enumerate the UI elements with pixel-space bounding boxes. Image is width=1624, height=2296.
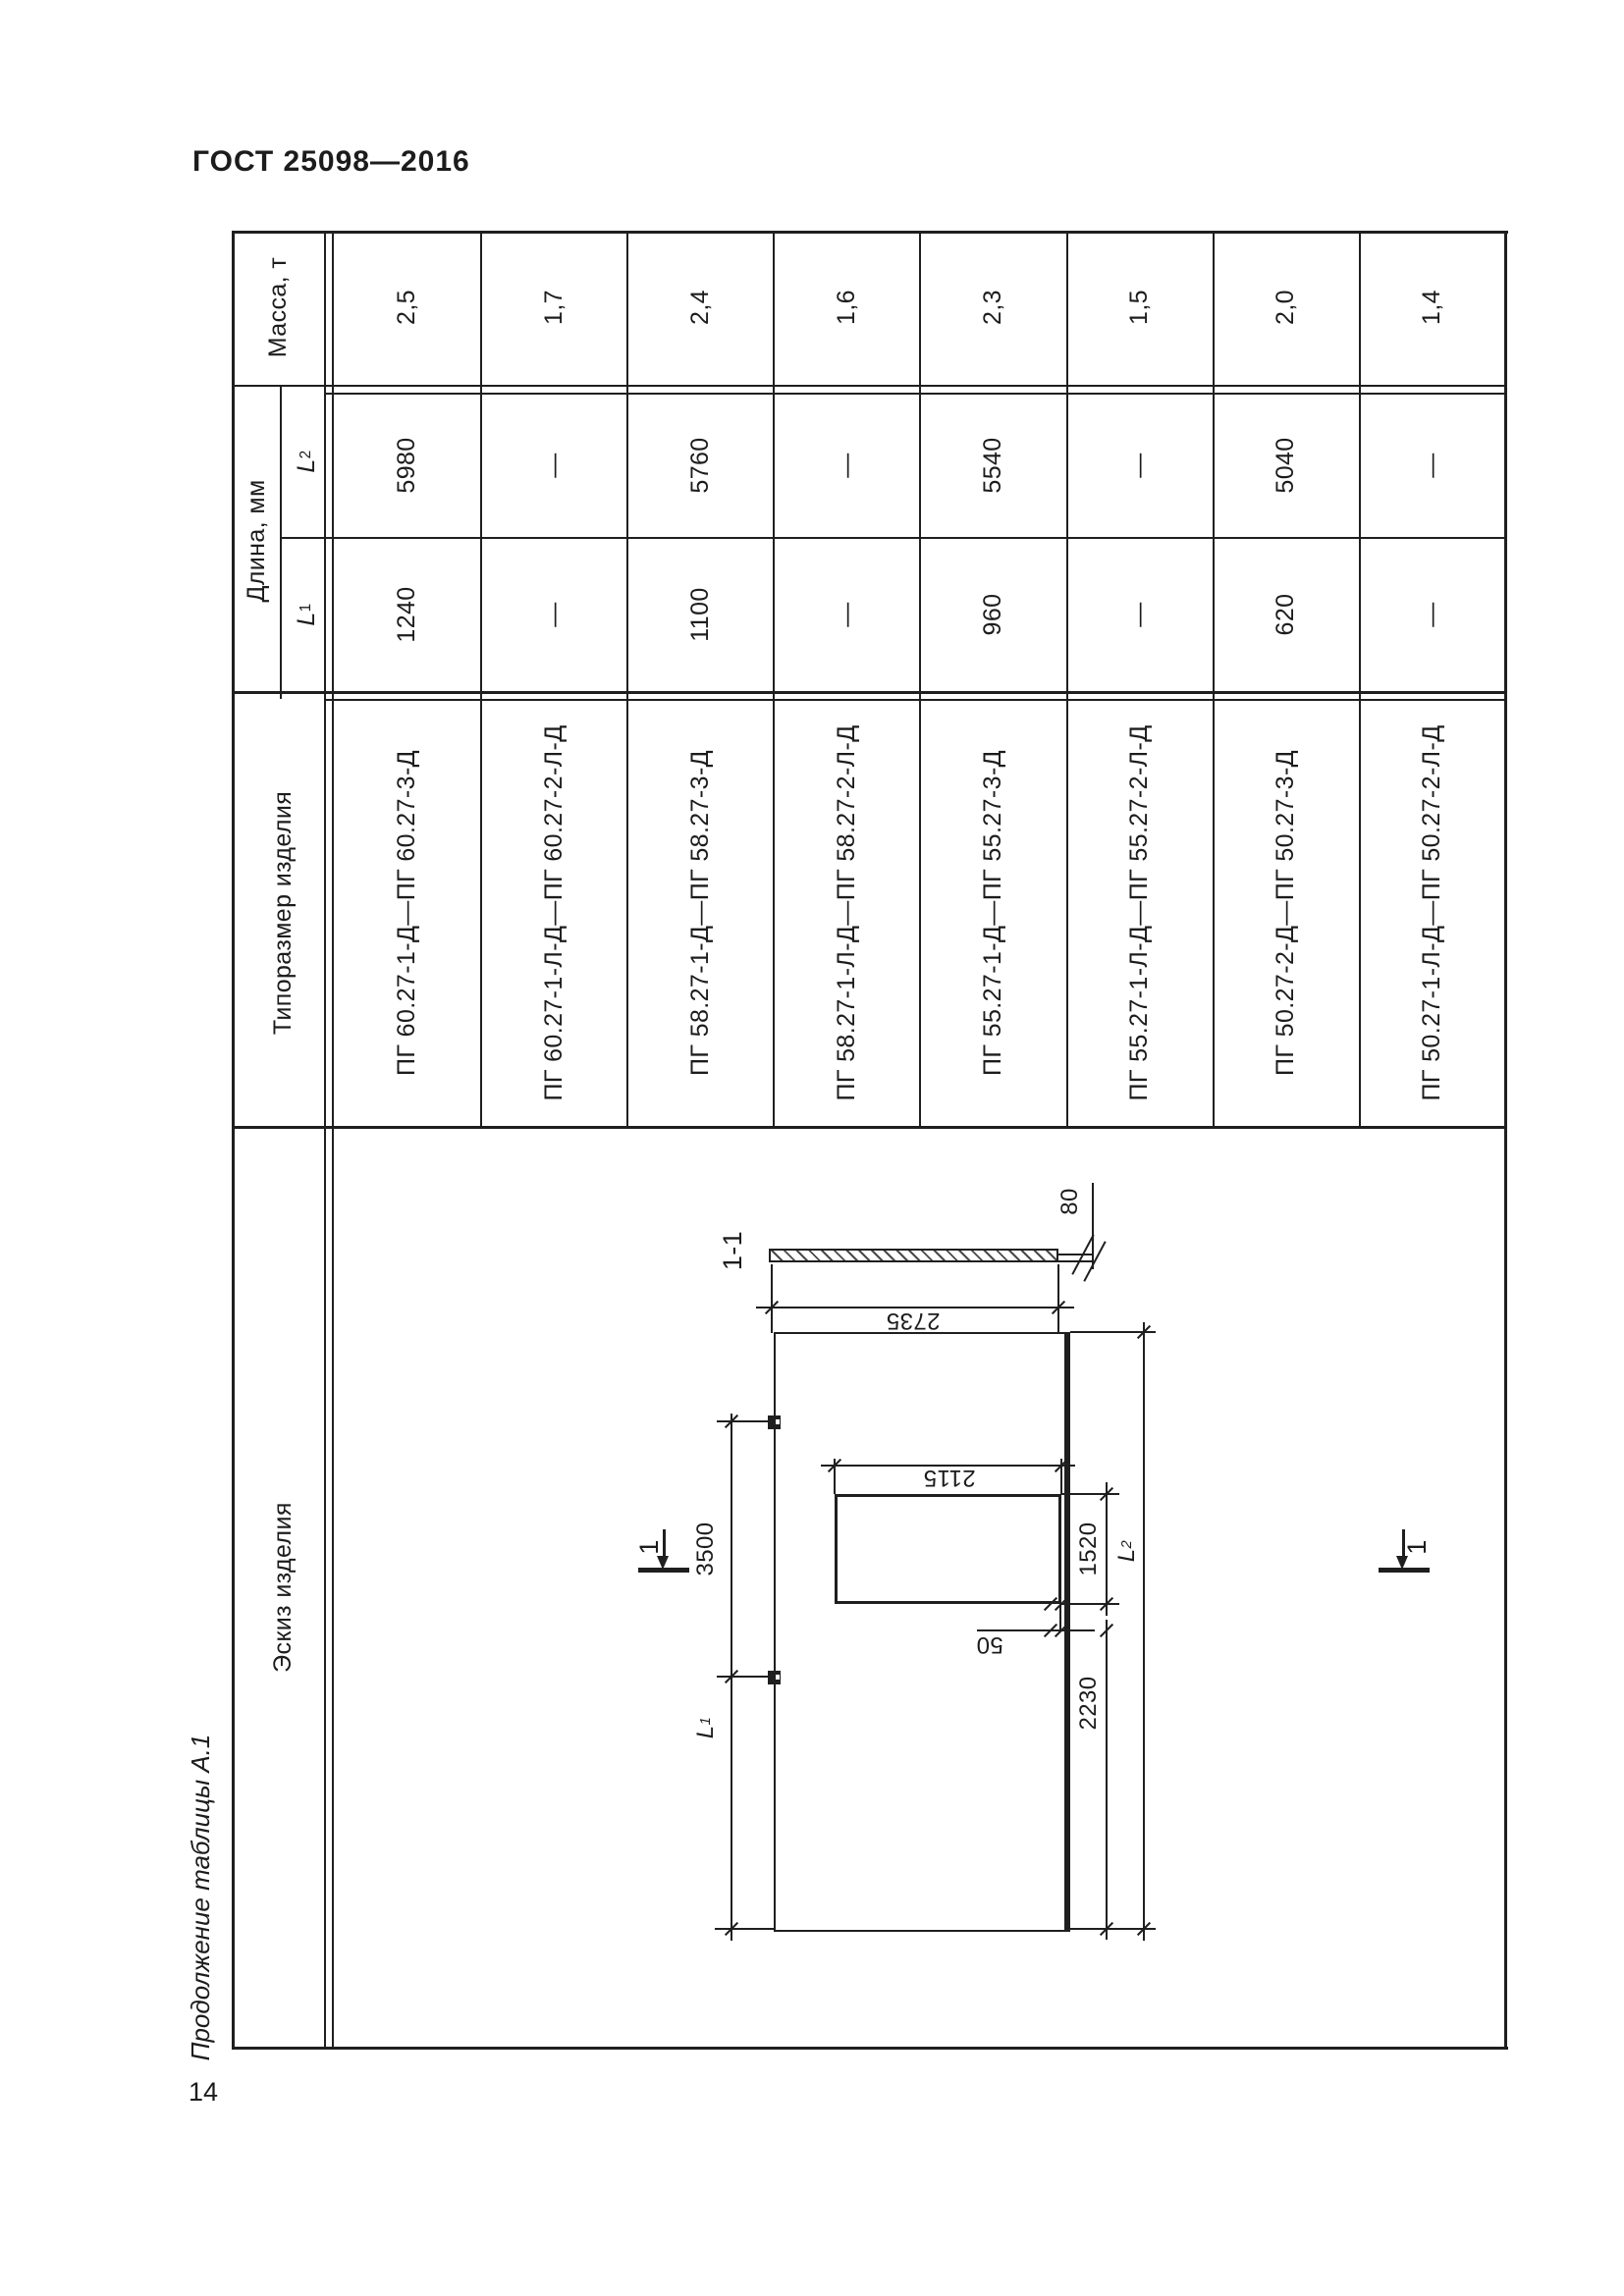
- dim-thickness-80: 80: [1054, 1143, 1087, 1260]
- column-header-sketch: Эскиз изделия: [266, 1420, 299, 1754]
- lifting-loop: [768, 1415, 781, 1429]
- page-number: 14: [189, 2077, 218, 2108]
- cell-type-6: ПГ 55.27-1-Л-Д—ПГ 55.27-2-Л-Д: [1122, 687, 1156, 1139]
- column-line: [480, 233, 482, 1127]
- column-line: [1066, 233, 1068, 1127]
- cell-type-3: ПГ 58.27-1-Д—ПГ 58.27-3-Д: [683, 687, 717, 1139]
- dimension-line-l2: [1143, 1322, 1145, 1941]
- extension-line: [1057, 1264, 1059, 1333]
- table-continuation-caption: Продолжение таблицы А.1: [186, 1721, 215, 2074]
- l1-symbol: L: [295, 612, 319, 625]
- row-line-mass-length: [233, 385, 1505, 387]
- standard-number-heading: ГОСТ 25098—2016: [192, 145, 470, 179]
- row-line-l2-l1: [280, 537, 1505, 539]
- table-border-top: [233, 231, 1508, 234]
- extension-line-80: [1092, 1183, 1094, 1269]
- cut-label-left: 1: [632, 1518, 666, 1576]
- extension-line: [717, 1676, 772, 1678]
- column-header-type: Типоразмер изделия: [266, 746, 299, 1080]
- dim-l1-label: L1: [689, 1669, 723, 1787]
- cell-type-2: ПГ 60.27-1-Л-Д—ПГ 60.27-2-Л-Д: [537, 687, 570, 1139]
- column-line: [1359, 233, 1361, 1127]
- dim-opening-width-2115: 2115: [871, 1461, 1028, 1494]
- loop-notch: [776, 1675, 780, 1680]
- loop-notch: [776, 1419, 780, 1424]
- extension-line: [717, 1420, 772, 1422]
- row-line-mass-length-2: [326, 393, 1505, 395]
- section-slab-hatched-bar: [769, 1249, 1058, 1262]
- cell-type-4: ПГ 58.27-1-Л-Д—ПГ 58.27-2-Л-Д: [830, 687, 863, 1139]
- cell-type-5: ПГ 55.27-1-Д—ПГ 55.27-3-Д: [976, 687, 1009, 1139]
- section-tail-bottom-line: [1058, 1260, 1092, 1262]
- row-line-l1-type-2: [326, 699, 1505, 701]
- header-double-rule: [324, 231, 326, 2047]
- dim-edge-offset-50: 50: [941, 1628, 1039, 1661]
- l2-symbol: L: [1115, 1548, 1139, 1562]
- offset-measure-line: [1059, 1604, 1061, 1631]
- dimension-line-2230: [1106, 1620, 1108, 1940]
- column-header-l1: L1: [290, 448, 323, 781]
- cell-type-1: ПГ 60.27-1-Д—ПГ 60.27-3-Д: [390, 687, 423, 1139]
- table-border-bottom: [233, 2047, 1508, 2050]
- section-view-label: 1-1: [716, 1192, 749, 1309]
- row-line-l1-type: [233, 691, 1505, 694]
- cell-type-7: ПГ 50.27-2-Д—ПГ 50.27-3-Д: [1269, 687, 1302, 1139]
- column-line: [773, 233, 775, 1127]
- header-double-rule: [332, 231, 334, 2047]
- dim-l2-label: L2: [1110, 1492, 1144, 1610]
- dim-end-length-2230: 2230: [1072, 1625, 1106, 1782]
- cut-label-right: 1: [1400, 1518, 1434, 1576]
- table-border-right: [1504, 231, 1507, 2050]
- dimension-line-1520: [1106, 1482, 1108, 1616]
- column-line: [1213, 233, 1215, 1127]
- column-line: [919, 233, 921, 1127]
- opening-outline: [835, 1494, 1061, 1604]
- extension-line: [715, 1928, 776, 1930]
- lifting-loop: [768, 1671, 781, 1684]
- dim-opening-length-1520: 1520: [1072, 1470, 1106, 1628]
- column-line: [626, 233, 628, 1127]
- l1-symbol: L: [694, 1725, 718, 1738]
- dim-loop-spacing-3500: 3500: [689, 1470, 723, 1628]
- cell-type-8: ПГ 50.27-1-Л-Д—ПГ 50.27-2-Л-Д: [1415, 687, 1448, 1139]
- column-header-length: Длина, мм: [240, 374, 273, 708]
- row-line-type-sketch: [233, 1126, 1505, 1129]
- extension-line: [771, 1264, 773, 1333]
- document-page: ГОСТ 25098—2016 Продолжение таблицы А.1 …: [0, 0, 1624, 2296]
- table-border-left: [232, 231, 235, 2050]
